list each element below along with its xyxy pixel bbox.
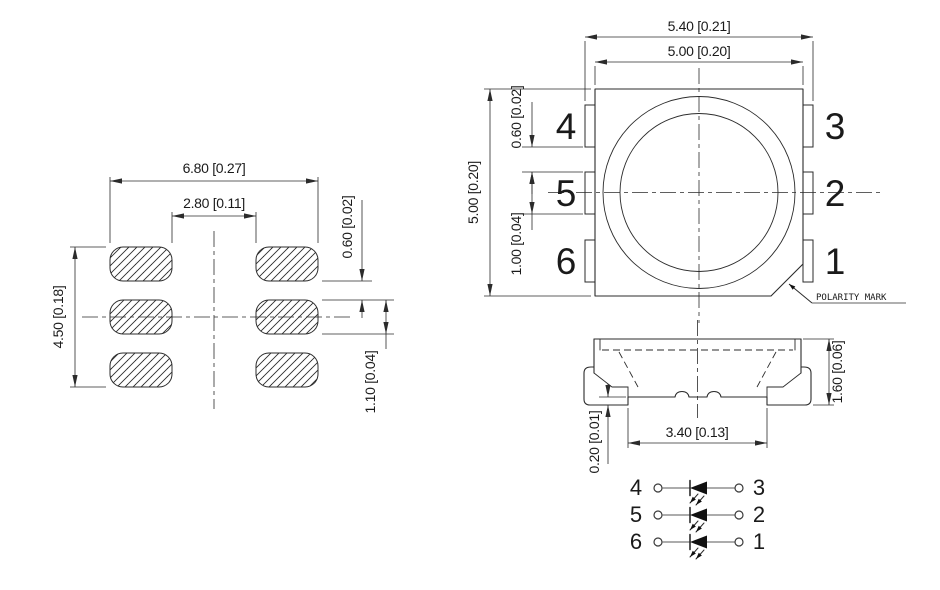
land-pattern-view: 6.80 [0.27] 2.80 [0.11] 4.50 [0.18] 0.60… bbox=[50, 160, 394, 413]
polarity-mark-callout: POLARITY MARK bbox=[789, 284, 906, 303]
pin-number-3: 3 bbox=[825, 106, 846, 147]
terminal-circle bbox=[654, 538, 662, 546]
terminal-circle bbox=[654, 511, 662, 519]
terminal-circle bbox=[735, 484, 743, 492]
package-side-view: 1.60 [0.06] 3.40 [0.13] 0.20 [0.01] bbox=[584, 320, 845, 473]
circuit-schematic: 4 3 5 2 6 bbox=[630, 475, 765, 559]
solder-pad bbox=[256, 247, 318, 281]
dimension-label-standoff: 0.20 [0.01] bbox=[586, 411, 602, 474]
lead-pad-4 bbox=[585, 105, 595, 147]
lead-pad-3 bbox=[803, 105, 813, 147]
dimension-label-inner-width: 2.80 [0.11] bbox=[183, 195, 245, 211]
schematic-row: 5 2 bbox=[630, 502, 765, 532]
lead-pad-1 bbox=[803, 240, 813, 282]
schematic-pin-right: 2 bbox=[753, 502, 765, 527]
led-symbol bbox=[690, 536, 707, 549]
solder-pad bbox=[256, 353, 318, 387]
schematic-pin-right: 1 bbox=[753, 529, 765, 554]
dimension-label-outer-width: 6.80 [0.27] bbox=[183, 160, 246, 176]
schematic-row: 6 1 bbox=[630, 529, 765, 559]
led-symbol bbox=[690, 482, 707, 495]
pin-number-6: 6 bbox=[556, 241, 577, 282]
dimension-pad-height: 1.10 [0.04] bbox=[322, 300, 394, 413]
dimension-label-lead-span: 3.40 [0.13] bbox=[666, 424, 729, 440]
terminal-circle bbox=[735, 511, 743, 519]
lead-pad-5 bbox=[585, 172, 595, 214]
dimension-label-body-height: 5.00 [0.20] bbox=[465, 161, 481, 224]
dimension-label-pad-height: 1.10 [0.04] bbox=[362, 351, 378, 414]
dimension-pad-gap: 0.60 [0.02] bbox=[322, 196, 394, 318]
schematic-row: 4 3 bbox=[630, 475, 765, 505]
right-lead bbox=[767, 367, 811, 405]
terminal-circle bbox=[654, 484, 662, 492]
solder-pad bbox=[110, 353, 172, 387]
left-lead bbox=[584, 367, 628, 405]
dimension-label-pad-gap: 0.60 [0.02] bbox=[339, 196, 355, 259]
technical-drawing-canvas: 6.80 [0.27] 2.80 [0.11] 4.50 [0.18] 0.60… bbox=[0, 0, 940, 590]
dimension-label-lead-width: 1.00 [0.04] bbox=[508, 213, 524, 276]
dimension-label-lead-gap: 0.60 [0.02] bbox=[508, 86, 524, 149]
dimension-height: 1.60 [0.06] bbox=[803, 339, 845, 405]
dimension-label-height: 1.60 [0.06] bbox=[829, 341, 845, 404]
schematic-pin-left: 4 bbox=[630, 475, 642, 500]
schematic-pin-left: 6 bbox=[630, 529, 642, 554]
dimension-label-body-width: 5.00 [0.20] bbox=[668, 43, 731, 59]
schematic-pin-left: 5 bbox=[630, 502, 642, 527]
dimension-label-overall-width: 5.40 [0.21] bbox=[668, 18, 731, 34]
polarity-mark-label: POLARITY MARK bbox=[816, 293, 887, 303]
lead-pad-6 bbox=[585, 240, 595, 282]
terminal-circle bbox=[735, 538, 743, 546]
pin-number-1: 1 bbox=[825, 241, 846, 282]
pin-number-5: 5 bbox=[556, 173, 577, 214]
solder-pad bbox=[110, 247, 172, 281]
dimension-standoff: 0.20 [0.01] bbox=[586, 384, 626, 473]
drawing-sheet: 6.80 [0.27] 2.80 [0.11] 4.50 [0.18] 0.60… bbox=[0, 0, 940, 590]
schematic-pin-right: 3 bbox=[753, 475, 765, 500]
pin-number-2: 2 bbox=[825, 173, 846, 214]
package-top-view: 5.40 [0.21] 5.00 [0.20] 5.00 [0.20] 0.60… bbox=[465, 18, 906, 323]
led-symbol bbox=[690, 509, 707, 522]
lead-pad-2 bbox=[803, 172, 813, 214]
pin-number-4: 4 bbox=[556, 106, 577, 147]
dimension-label-overall-height: 4.50 [0.18] bbox=[50, 286, 66, 349]
